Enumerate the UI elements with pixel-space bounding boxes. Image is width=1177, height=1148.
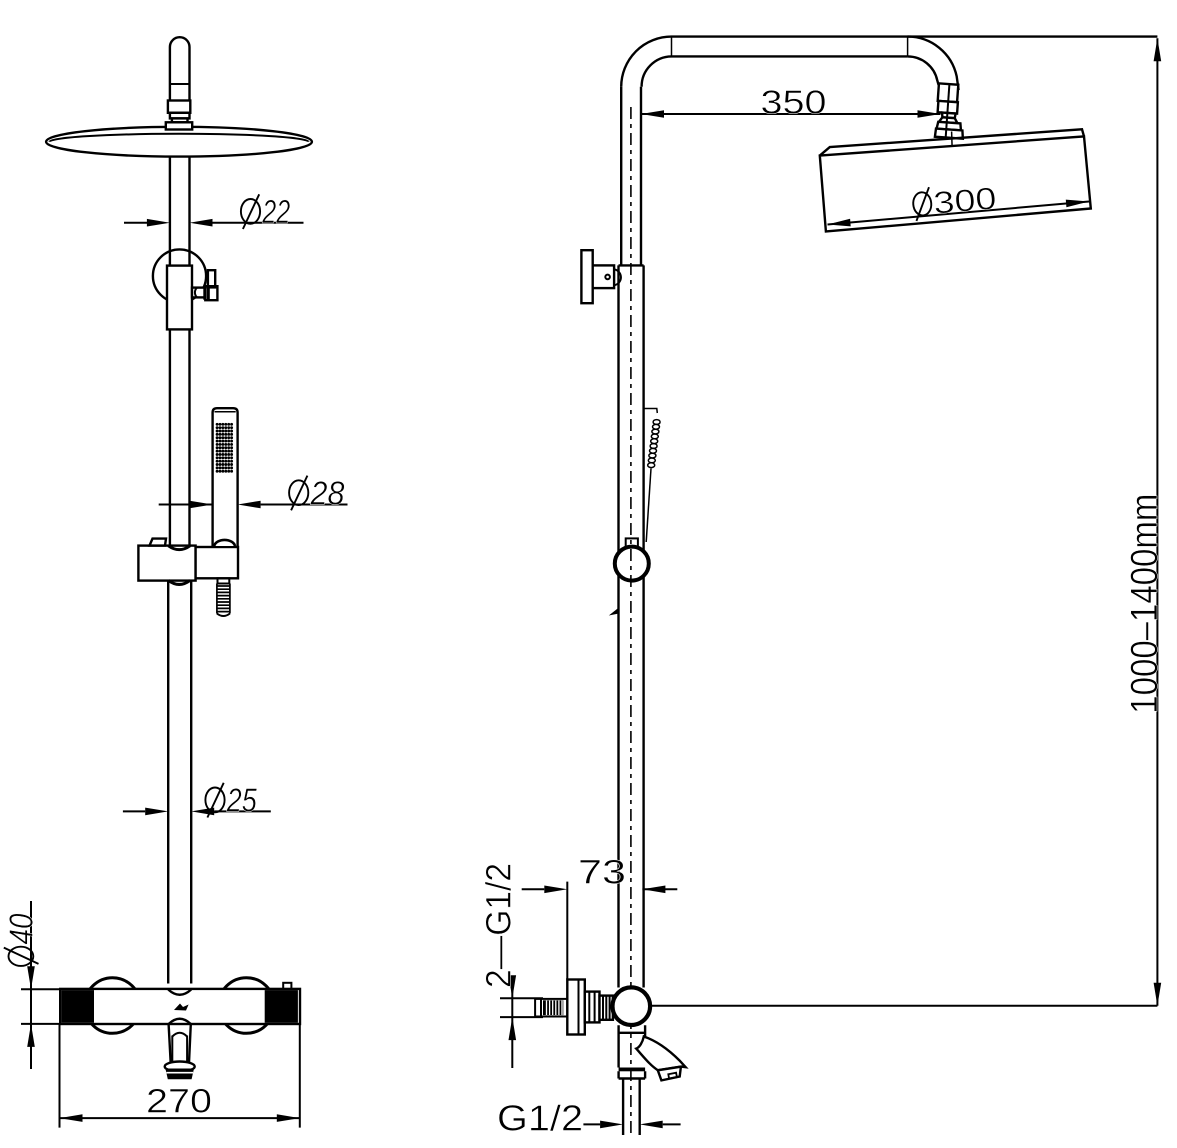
svg-text:25: 25	[226, 782, 257, 819]
svg-text:73: 73	[578, 854, 626, 892]
svg-text:1000–1400mm: 1000–1400mm	[1124, 494, 1166, 714]
svg-text:2—G1/2: 2—G1/2	[480, 863, 519, 988]
svg-text:40: 40	[3, 913, 40, 945]
svg-text:300: 300	[932, 181, 998, 221]
svg-text:22: 22	[262, 193, 291, 230]
svg-text:270: 270	[146, 1082, 212, 1120]
svg-text:G1/2: G1/2	[497, 1098, 583, 1139]
svg-text:350: 350	[761, 83, 827, 120]
svg-text:28: 28	[310, 474, 346, 511]
